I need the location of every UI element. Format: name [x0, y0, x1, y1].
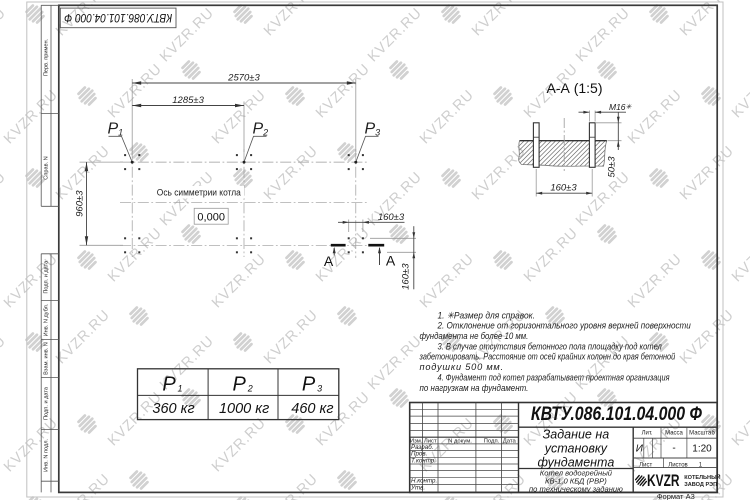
svg-text:A: A	[386, 253, 396, 269]
svg-text:P: P	[162, 374, 176, 396]
svg-text:подушки 500 мм.: подушки 500 мм.	[420, 362, 504, 372]
svg-text:460 кг: 460 кг	[291, 401, 333, 417]
svg-text:Инв. N подл.: Инв. N подл.	[44, 439, 50, 472]
svg-text:Н.контр.: Н.контр.	[411, 478, 437, 485]
svg-text:KVZR.RU: KVZR.RU	[365, 333, 425, 393]
svg-text:Задание на: Задание на	[543, 427, 610, 441]
svg-text:KVZR.RU: KVZR.RU	[729, 61, 750, 121]
svg-text:960±3: 960±3	[74, 190, 85, 217]
svg-text:Дата: Дата	[503, 439, 517, 445]
svg-text:КВТУ.086.101.04.000 Ф: КВТУ.086.101.04.000 Ф	[64, 11, 172, 25]
svg-text:2. Отклонение от горизонтальн: 2. Отклонение от горизонтального уровня …	[437, 321, 691, 331]
svg-text:Перв. примен.: Перв. примен.	[44, 38, 50, 76]
svg-text:KVZR.RU: KVZR.RU	[53, 471, 113, 500]
svg-text:ЗАВОД РЭП: ЗАВОД РЭП	[684, 482, 717, 488]
svg-text:4. Фундамент под котел разраб: 4. Фундамент под котел разрабатывает про…	[438, 372, 670, 382]
svg-text:3: 3	[317, 384, 322, 394]
svg-text:Масштаб: Масштаб	[689, 430, 715, 436]
svg-text:по техническому заданию: по техническому заданию	[529, 484, 623, 493]
svg-text:А-А (1:5): А-А (1:5)	[546, 80, 602, 96]
svg-text:Лист: Лист	[639, 463, 652, 469]
svg-text:Формат А3: Формат А3	[657, 492, 695, 500]
svg-text:1:20: 1:20	[692, 444, 712, 455]
svg-text:установку: установку	[544, 441, 608, 455]
svg-text:забетонировать. Расстояние от: забетонировать. Расстояние от осей крайн…	[419, 352, 675, 362]
svg-text:Ось симметрии котла: Ось симметрии котла	[157, 188, 241, 198]
svg-text:3. В случае отсутствия бетонн: 3. В случае отсутствия бетонного пола пл…	[438, 341, 662, 351]
svg-text:0,000: 0,000	[197, 211, 225, 223]
svg-text:1285±3: 1285±3	[172, 95, 204, 106]
svg-text:KVZR.RU: KVZR.RU	[1, 415, 61, 475]
svg-text:KVZR.RU: KVZR.RU	[313, 61, 373, 121]
svg-text:P3: P3	[365, 121, 381, 138]
svg-text:160±3: 160±3	[550, 182, 577, 193]
svg-text:KVZR.RU: KVZR.RU	[105, 225, 165, 285]
svg-text:KVZR.RU: KVZR.RU	[625, 251, 685, 311]
svg-text:Листов: Листов	[668, 463, 688, 469]
svg-text:КВТУ.086.101.04.000 Ф: КВТУ.086.101.04.000 Ф	[531, 404, 702, 425]
svg-text:KVZR.RU: KVZR.RU	[417, 87, 477, 147]
svg-text:P1: P1	[108, 121, 124, 138]
svg-text:фундамента не более 10 мм.: фундамента не более 10 мм.	[420, 331, 529, 341]
svg-text:KVZR.RU: KVZR.RU	[625, 87, 685, 147]
svg-text:Справ. N: Справ. N	[44, 156, 50, 179]
svg-text:KVZR.RU: KVZR.RU	[313, 225, 373, 285]
svg-text:Утв.: Утв.	[410, 485, 425, 492]
svg-text:KVZR.RU: KVZR.RU	[209, 415, 269, 475]
svg-text:KVZR.RU: KVZR.RU	[573, 169, 633, 229]
svg-text:160±3: 160±3	[400, 263, 411, 290]
svg-text:по нагрузкам на фундамент.: по нагрузкам на фундамент.	[420, 383, 529, 393]
svg-text:KVZR.RU: KVZR.RU	[1, 87, 61, 147]
svg-text:KVZR.RU: KVZR.RU	[365, 5, 425, 65]
svg-text:KVZR.RU: KVZR.RU	[729, 225, 750, 285]
svg-text:М16✳: М16✳	[609, 102, 633, 112]
svg-text:KVZR.RU: KVZR.RU	[677, 143, 737, 203]
svg-text:P: P	[233, 374, 247, 396]
svg-text:1000 кг: 1000 кг	[219, 401, 269, 417]
svg-text:KVZR.RU: KVZR.RU	[0, 5, 9, 65]
svg-text:Лит.: Лит.	[642, 430, 653, 436]
svg-text:KVZR.RU: KVZR.RU	[261, 471, 321, 500]
svg-text:KVZR.RU: KVZR.RU	[209, 87, 269, 147]
svg-text:КОТЕЛЬНЫЙ: КОТЕЛЬНЫЙ	[684, 473, 720, 481]
svg-text:KVZR.RU: KVZR.RU	[729, 389, 750, 449]
svg-text:KVZR.RU: KVZR.RU	[0, 169, 9, 229]
svg-text:И: И	[636, 444, 644, 455]
svg-text:KVZR.RU: KVZR.RU	[677, 307, 737, 367]
svg-text:KVZR.RU: KVZR.RU	[209, 251, 269, 311]
svg-text:KVZR.RU: KVZR.RU	[261, 307, 321, 367]
svg-text:N докум.: N докум.	[448, 439, 472, 445]
svg-text:фундамента: фундамента	[538, 456, 615, 470]
svg-text:KVZR.RU: KVZR.RU	[469, 471, 529, 500]
svg-text:P2: P2	[253, 121, 269, 138]
svg-text:1: 1	[178, 384, 183, 394]
svg-text:Подп.: Подп.	[484, 439, 500, 445]
svg-text:160±3: 160±3	[378, 212, 405, 223]
svg-text:KVZR.RU: KVZR.RU	[1, 251, 61, 311]
svg-text:360 кг: 360 кг	[152, 401, 194, 417]
svg-text:KVZR: KVZR	[647, 471, 680, 490]
svg-text:KVZR.RU: KVZR.RU	[53, 307, 113, 367]
svg-text:KVZR.RU: KVZR.RU	[105, 61, 165, 121]
svg-text:A: A	[324, 253, 334, 269]
svg-text:KVZR.RU: KVZR.RU	[417, 251, 477, 311]
svg-text:KVZR.RU: KVZR.RU	[0, 333, 9, 393]
svg-text:2570±3: 2570±3	[227, 73, 260, 84]
svg-text:KVZR.RU: KVZR.RU	[521, 225, 581, 285]
svg-text:P: P	[302, 374, 316, 396]
svg-text:KVZR.RU: KVZR.RU	[469, 143, 529, 203]
svg-text:Масса: Масса	[665, 430, 683, 436]
svg-text:2: 2	[247, 384, 253, 394]
svg-text:Взам. инв. N: Взам. инв. N	[44, 342, 50, 375]
svg-text:KVZR.RU: KVZR.RU	[261, 143, 321, 203]
svg-text:KVZR.RU: KVZR.RU	[573, 5, 633, 65]
svg-text:Т.контр.: Т.контр.	[411, 457, 436, 464]
svg-text:Инв. N дубл.: Инв. N дубл.	[44, 303, 50, 336]
svg-text:50±3: 50±3	[607, 156, 618, 178]
svg-text:-: -	[672, 443, 675, 454]
svg-text:Подп. и дата: Подп. и дата	[44, 260, 50, 294]
svg-text:Подп. и дата: Подп. и дата	[44, 386, 50, 420]
svg-text:1. ✳Размер для справок.: 1. ✳Размер для справок.	[438, 310, 536, 320]
